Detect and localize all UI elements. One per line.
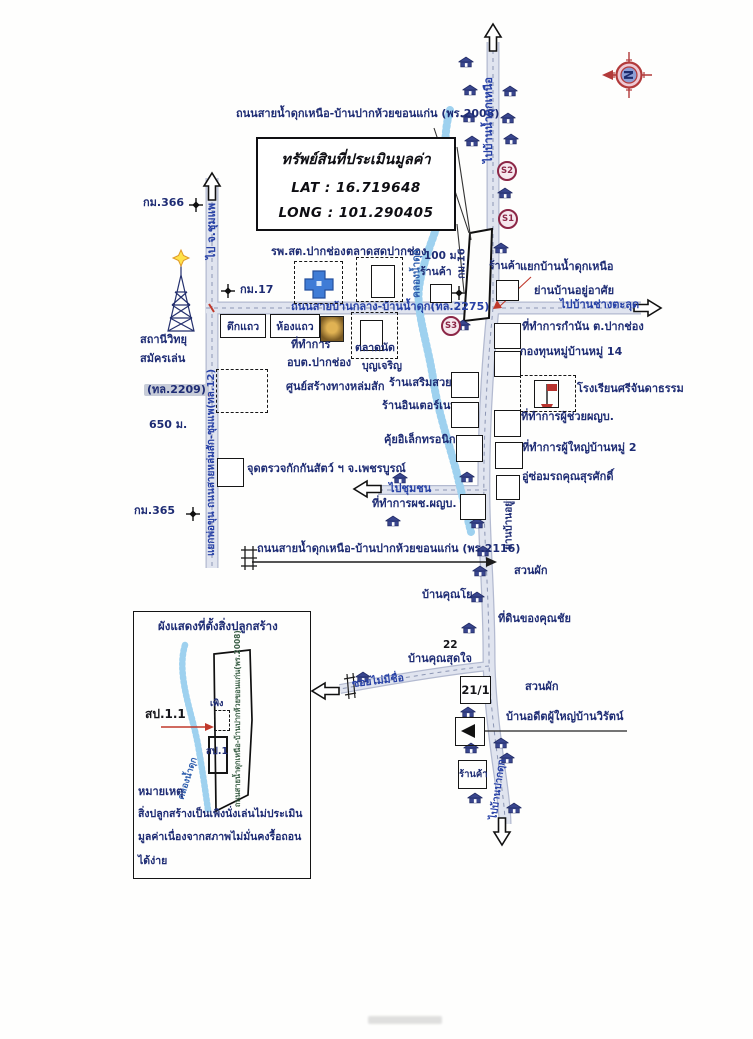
inset-shed-label: เพิง [210,700,223,710]
asst-office-box [460,494,486,520]
ban-yo-label: บ้านคุณโย [422,589,473,601]
quarantine-box [217,458,244,487]
hospital-dashed-box [294,261,343,304]
tower-star-icon [173,250,189,266]
marker-s2: S2 [497,161,517,181]
shop-south-box: ร้านค้า [458,760,487,789]
compass-rose: N [602,52,652,98]
asst-headman-box [494,410,521,437]
road-2116-label: ถนนสายน้ำดุกเหนือ-บ้านปากห้วยขอนแก่น (พร… [257,543,520,555]
veg-garden-label-2: สวนผัก [525,681,559,693]
beauty-shop-label: ร้านเสริมสวย [389,377,452,389]
flea-market-label-2: บุญเจริญ [362,361,402,373]
callout-lat: LAT : 16.719648 [291,180,421,196]
property-callout-box: ทรัพย์สินที่ประเมินมูลค่า LAT : 16.71964… [256,137,456,231]
sao-office-label-1: ที่ทำการ [291,339,330,351]
internet-shop-label: ร้านอินเตอร์เนท [382,400,458,412]
school-label: โรงเรียนศรีจันดาธรรม [577,383,684,395]
flea-market-label-1: ตลาดนัด [355,343,395,355]
village-fund-label: กองทุนหมู่บ้านหมู่ 14 [520,346,622,358]
house-icon [386,516,401,526]
house-icon [501,113,516,123]
scanned-survey-map: N ถนนสายน้ำดุกเหนือ-บ้านปากห้วยขอนแก่น (… [0,0,753,1039]
house-icon [498,188,513,198]
inset-shed-box [214,710,230,731]
fresh-market-icon-box [371,265,395,298]
chai-land-label: ที่ดินของคุณชัย [498,613,571,625]
former-headman-label: บ้านอดีตผู้ใหญ่บ้านวิรัตน์ [506,711,623,723]
house-icon [503,86,518,96]
kamnan-office-label: ที่ทำการกำนัน ต.ปากช่อง [522,321,644,333]
rowhouse-label: ห้องแถว [276,321,313,333]
asst-headman-label: ที่ทำการผู้ช่วยผญบ. [521,411,614,423]
inset-sp1-label: สป.1 [206,747,228,757]
sao-office-label-2: อบต.ปากช่อง [287,357,351,369]
km16-label: กม.16 [457,246,468,282]
internet-shop-box [451,402,479,428]
garage-box [496,475,520,500]
inset-note-line1: สิ่งปลูกสร้างเป็นเพิงนั่งเล่นไม่ประเมิน [138,809,302,821]
scan-artifact [368,1016,442,1024]
village-fund-box [494,351,521,377]
garage-label: อู่ซ่อมรถคุณสุรศักดิ์ [522,471,613,483]
km366-label: กม.366 [143,197,184,209]
to-changtalut-label: ไปบ้านช่างตะลุด [560,299,639,311]
marker-s1: S1 [498,209,518,229]
distance-100-label: 100 ม. [424,251,460,263]
road-center-label: ศูนย์สร้างทางหล่มสัก [286,381,385,393]
shophouse-box: ตึกแถว [220,314,266,338]
to-chumphae-label: ไป จ.ชุมแพ [206,199,218,263]
house-icon [460,472,475,482]
marker-s3: S3 [441,316,461,336]
km17-label: กม.17 [240,284,273,296]
shop-south-label: ร้านค้า [459,769,488,780]
headman-moo2-box [495,442,523,469]
km365-label: กม.365 [134,505,175,517]
radio-station-label-1: สถานีวิทยุ [140,334,187,346]
rowhouse-box: ห้องแถว [270,314,320,338]
house-icon [459,57,474,67]
radio-station-label-2: สมัครเล่น [140,353,185,365]
to-namduk-nuea-label: ไปบ้านน้ำดุกเหนือ [483,70,495,170]
electronics-box [456,435,483,462]
shop-east-box [496,280,519,301]
shop-west-box [430,284,452,303]
hospital-label: รพ.สต.ปากช่อง [271,246,346,258]
to-community-label: ไปชุมชน [389,483,431,495]
beauty-shop-box [451,372,479,398]
junction-label: แยกบ้านน้ำดุกเหนือ [520,261,614,273]
house-icon [465,136,480,146]
quarantine-label: จุดตรวจกักกันสัตว์ ฯ จ.เพชรบูรณ์ [247,463,406,475]
house-icon [468,793,483,803]
ban-sutjai-label: บ้านคุณสุดใจ [408,653,472,665]
inset-title: ผังแสดงที่ตั้งสิ่งปลูกสร้าง [158,620,278,633]
shophouse-label: ตึกแถว [227,321,259,333]
inset-note-line3: ได้ง่าย [138,856,167,868]
shop-east-label: ร้านค้า [489,261,521,273]
inset-road-label: ถนนสายน้ำดุกเหนือ-บ้านปากห้วยขอนแก่น(พร.… [234,645,242,807]
shop-west-label: ร้านค้า [420,267,452,279]
compass-north-letter: N [622,70,636,80]
house-icon [504,134,519,144]
road-top-label: ถนนสายน้ำดุกเหนือ-บ้านปากห้วยขอนแก่น (พร… [236,108,499,120]
callout-long: LONG : 101.290405 [279,205,434,221]
asst-office-label: ที่ทำการผช.ผญบ. [372,498,457,510]
distance-650-label: 650 ม. [149,419,187,431]
electronics-shop-label: คุ้ยอิเล็กทรอนิก [384,434,456,446]
former-headman-box [455,717,485,746]
bridge-hatch-icon [241,546,257,570]
house-icon [463,85,478,95]
inset-sp11-label: สป.1.1 [145,708,186,721]
kamnan-box [494,323,521,349]
hw2209-label: (ทล.2209) [144,384,209,396]
inset-note-head: หมายเหตุ [138,786,183,798]
inset-note-line2: มูลค่าเนื่องจากสภาพไม่มั่นคงรื้อถอน [138,832,301,844]
road-center-dashed-box [216,369,268,413]
house-icon [462,623,477,633]
radio-tower-icon [168,250,194,331]
residential-area-label: ย่านบ้านอยู่อาศัย [534,285,614,297]
veg-garden-label-1: สวนผัก [514,565,548,577]
headman-moo2-label: ที่ทำการผู้ใหญ่บ้านหมู่ 2 [522,442,637,454]
school-flag-box [534,380,559,408]
callout-title: ทรัพย์สินที่ประเมินมูลค่า [281,148,430,171]
number-22-label: 22 [443,640,458,652]
house-21-1-box: 21/1 [460,676,491,704]
house-icon [461,707,476,717]
house-21-1-label: 21/1 [461,683,489,697]
